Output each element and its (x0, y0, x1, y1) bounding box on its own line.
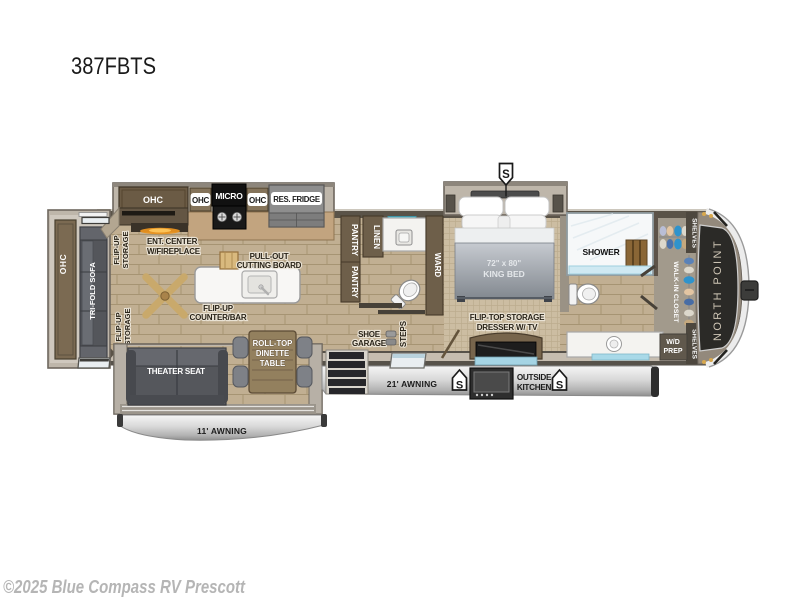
svg-text:OHC: OHC (58, 254, 68, 274)
svg-text:TABLE: TABLE (260, 359, 285, 368)
svg-text:CUTTING BOARD: CUTTING BOARD (237, 261, 302, 270)
svg-text:THEATER SEAT: THEATER SEAT (147, 367, 205, 376)
svg-text:OHC: OHC (249, 196, 266, 205)
svg-text:DINETTE: DINETTE (256, 349, 289, 358)
svg-text:KITCHEN: KITCHEN (517, 383, 552, 392)
svg-text:SHOE: SHOE (358, 330, 381, 339)
svg-text:OHC: OHC (143, 195, 164, 205)
svg-text:S: S (502, 169, 510, 181)
svg-text:11' AWNING: 11' AWNING (197, 426, 247, 436)
svg-text:STORAGE: STORAGE (121, 232, 130, 269)
svg-text:W/FIREPLACE: W/FIREPLACE (147, 247, 201, 256)
svg-text:PANTRY: PANTRY (350, 266, 359, 299)
svg-text:TRI-FOLD SOFA: TRI-FOLD SOFA (88, 262, 97, 320)
svg-text:NORTH POINT: NORTH POINT (712, 239, 724, 341)
svg-text:S: S (556, 380, 563, 392)
svg-text:PANTRY: PANTRY (350, 224, 359, 257)
svg-text:72" x 80": 72" x 80" (487, 259, 521, 268)
svg-text:LINEN: LINEN (372, 225, 381, 249)
svg-text:21' AWNING: 21' AWNING (387, 379, 438, 389)
svg-text:MICRO: MICRO (215, 191, 243, 201)
svg-text:©2025 Blue Compass RV Prescott: ©2025 Blue Compass RV Prescott (3, 577, 246, 597)
svg-text:FLIP-UP: FLIP-UP (112, 235, 121, 264)
svg-text:FLIP-UP: FLIP-UP (114, 312, 123, 341)
svg-text:W/D: W/D (666, 339, 680, 346)
svg-text:KING BED: KING BED (483, 269, 525, 279)
svg-text:PREP: PREP (663, 348, 682, 355)
svg-text:S: S (456, 380, 463, 392)
svg-text:387FBTS: 387FBTS (71, 53, 156, 80)
svg-text:OHC: OHC (192, 196, 209, 205)
svg-text:ROLL-TOP: ROLL-TOP (253, 339, 293, 348)
svg-text:PULL-OUT: PULL-OUT (250, 252, 289, 261)
svg-text:FLIP-TOP STORAGE: FLIP-TOP STORAGE (470, 313, 545, 322)
svg-text:STEPS: STEPS (399, 320, 408, 347)
svg-text:ENT. CENTER: ENT. CENTER (147, 237, 198, 246)
svg-text:OUTSIDE: OUTSIDE (517, 373, 552, 382)
svg-text:STORAGE: STORAGE (123, 309, 132, 346)
svg-text:WALK-IN CLOSET: WALK-IN CLOSET (672, 261, 679, 323)
svg-text:DRESSER W/ TV: DRESSER W/ TV (477, 323, 538, 332)
svg-text:GARAGE: GARAGE (352, 339, 387, 348)
svg-text:RES. FRIDGE: RES. FRIDGE (273, 195, 320, 204)
svg-text:COUNTER/BAR: COUNTER/BAR (190, 313, 247, 322)
svg-text:FLIP-UP: FLIP-UP (203, 304, 234, 313)
svg-text:SHOWER: SHOWER (582, 247, 619, 257)
svg-text:WARD: WARD (433, 253, 442, 278)
